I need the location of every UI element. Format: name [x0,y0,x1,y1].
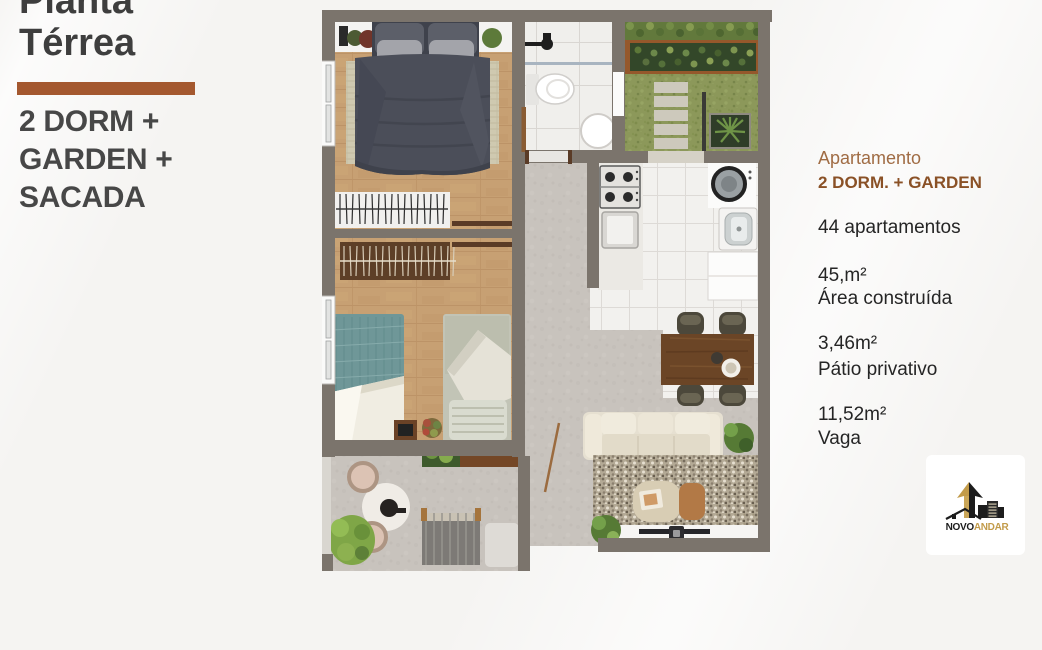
svg-text:NOVOANDAR: NOVOANDAR [946,522,1010,533]
